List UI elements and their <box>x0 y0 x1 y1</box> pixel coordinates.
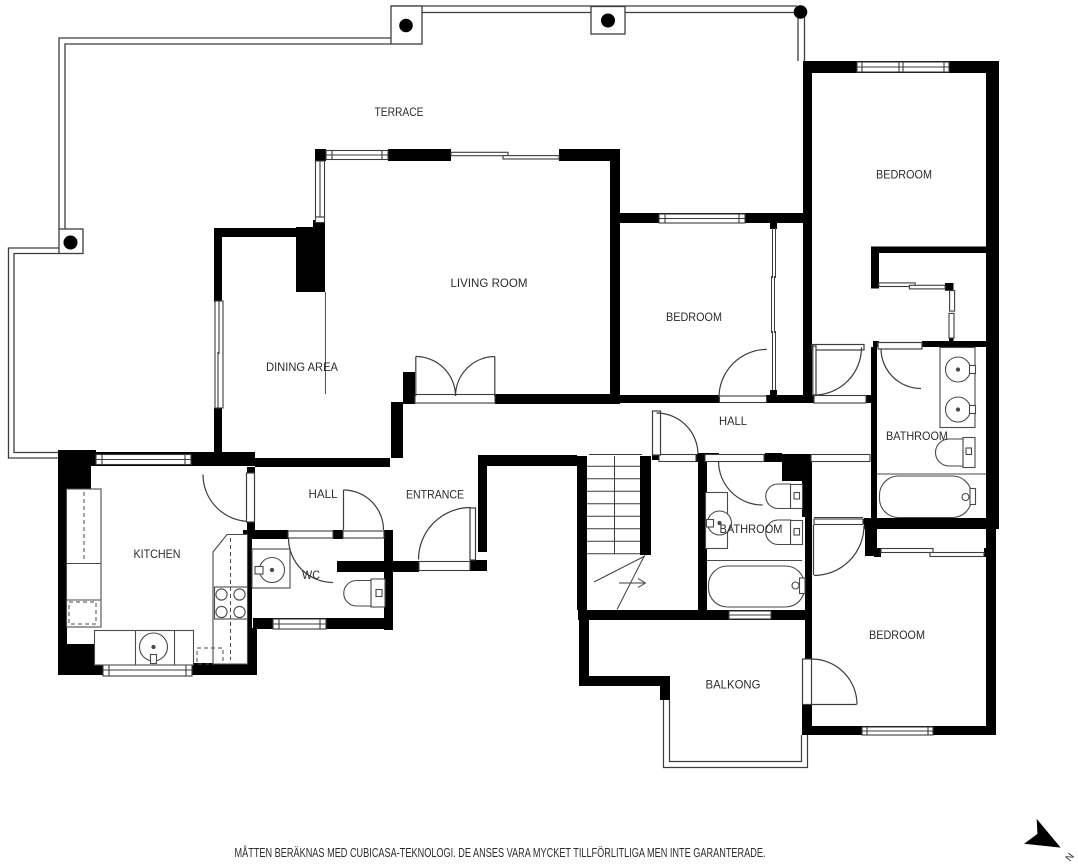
svg-text:MÅTTEN BERÄKNAS MED CUBICASA-T: MÅTTEN BERÄKNAS MED CUBICASA-TEKNOLOGI. … <box>235 845 766 860</box>
svg-text:LIVING ROOM: LIVING ROOM <box>451 276 528 290</box>
svg-text:HALL: HALL <box>719 414 747 428</box>
svg-text:BALKONG: BALKONG <box>706 678 761 692</box>
svg-text:BATHROOM: BATHROOM <box>886 429 948 443</box>
svg-text:WC: WC <box>302 568 320 582</box>
svg-text:DINING AREA: DINING AREA <box>266 360 338 374</box>
svg-text:ENTRANCE: ENTRANCE <box>406 488 464 502</box>
svg-text:KITCHEN: KITCHEN <box>134 547 181 561</box>
svg-text:TERRACE: TERRACE <box>375 105 424 119</box>
svg-text:BATHROOM: BATHROOM <box>720 522 783 536</box>
svg-text:BEDROOM: BEDROOM <box>666 310 722 324</box>
svg-text:HALL: HALL <box>309 487 338 501</box>
svg-text:BEDROOM: BEDROOM <box>869 628 925 642</box>
svg-text:BEDROOM: BEDROOM <box>876 168 932 182</box>
